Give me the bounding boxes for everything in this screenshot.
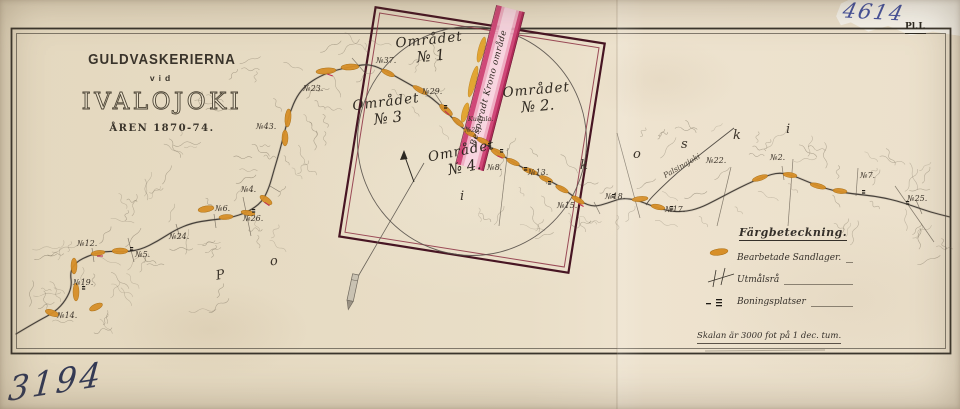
legend-item-label: Boningsplatser: [737, 297, 806, 307]
plate-label: Pl.I.: [905, 22, 926, 34]
legend-rule: [811, 298, 853, 307]
claim-number-label: №24.: [169, 232, 189, 241]
title-line-2: vid: [58, 73, 266, 83]
legend-rule: [846, 254, 853, 263]
claim-number-label: №18.: [605, 192, 625, 201]
river-name-letter: i: [460, 189, 464, 204]
river-name-letter: k: [580, 158, 588, 173]
claim-number-label: №4.: [241, 185, 256, 194]
survey-plumb-line: [345, 163, 424, 310]
claim-number-label: №29.: [422, 87, 442, 96]
claim-number-label: №12.: [77, 239, 97, 248]
legend-item-dwelling: Boningsplatser: [703, 297, 853, 307]
scale-pencil-marks: [705, 343, 825, 351]
claim-number-label: №5.: [135, 250, 150, 259]
legend-rule: [784, 276, 853, 285]
title-line-1: GULDVASKERIERNA: [66, 52, 257, 68]
river-name-letter: s: [681, 137, 688, 152]
claim-number-label: №14.: [57, 311, 77, 320]
legend-item-label: Bearbetade Sandlager.: [737, 253, 841, 263]
scale-caption: Skalan är 3000 fot på 1 dec. tum.: [697, 331, 841, 344]
claim-number-label: №22.: [706, 156, 726, 165]
legend-item-sand: Bearbetade Sandlager.: [703, 253, 853, 263]
legend-item-label: Utmålsrå: [737, 275, 779, 285]
map-title-block: GULDVASKERIERNA vid IVALOJOKI ÅREN 1870-…: [58, 52, 266, 134]
claim-number-label: №43.: [256, 122, 276, 131]
legend-item-boundary: Utmålsrå: [703, 275, 853, 285]
claim-number-label: №25.: [907, 194, 927, 203]
river-name-letter: o: [633, 147, 641, 162]
claim-number-label: Kultala.: [468, 115, 494, 123]
river-name-letter: i: [786, 122, 790, 137]
claim-number-label: №37.: [376, 56, 396, 65]
river-name-letter: k: [733, 128, 741, 143]
claim-number-label: №7.: [860, 171, 875, 180]
handwritten-inventory-number-top: 4614: [840, 0, 907, 25]
title-line-3-outlined: IVALOJOKI: [58, 85, 266, 117]
scanned-map-page: GULDVASKERIERNA vid IVALOJOKI ÅREN 1870-…: [0, 0, 960, 409]
claim-number-label: №19.: [73, 278, 93, 287]
claim-number-label: №17.: [665, 205, 685, 214]
claim-number-label: №23.: [303, 84, 323, 93]
legend-block: Färgbeteckning. Bearbetade Sandlager. Ut…: [703, 221, 853, 307]
claim-number-label: №26.: [243, 214, 263, 223]
legend-heading: Färgbeteckning.: [739, 226, 847, 241]
claim-number-label: №13.: [528, 168, 548, 177]
title-line-4: ÅREN 1870-74.: [58, 123, 266, 134]
claim-number-label: №6.: [215, 204, 230, 213]
north-arrow: [400, 150, 414, 182]
river-name-letter: o: [269, 254, 279, 270]
claim-number-label: №15.: [557, 201, 577, 210]
claim-number-label: №8.: [487, 163, 502, 172]
paper-fold-highlight: [619, 0, 645, 409]
claim-number-label: №2.: [770, 153, 785, 162]
claim-number-label: №28.: [465, 126, 482, 134]
title-main-name: IVALOJOKI: [82, 89, 243, 115]
